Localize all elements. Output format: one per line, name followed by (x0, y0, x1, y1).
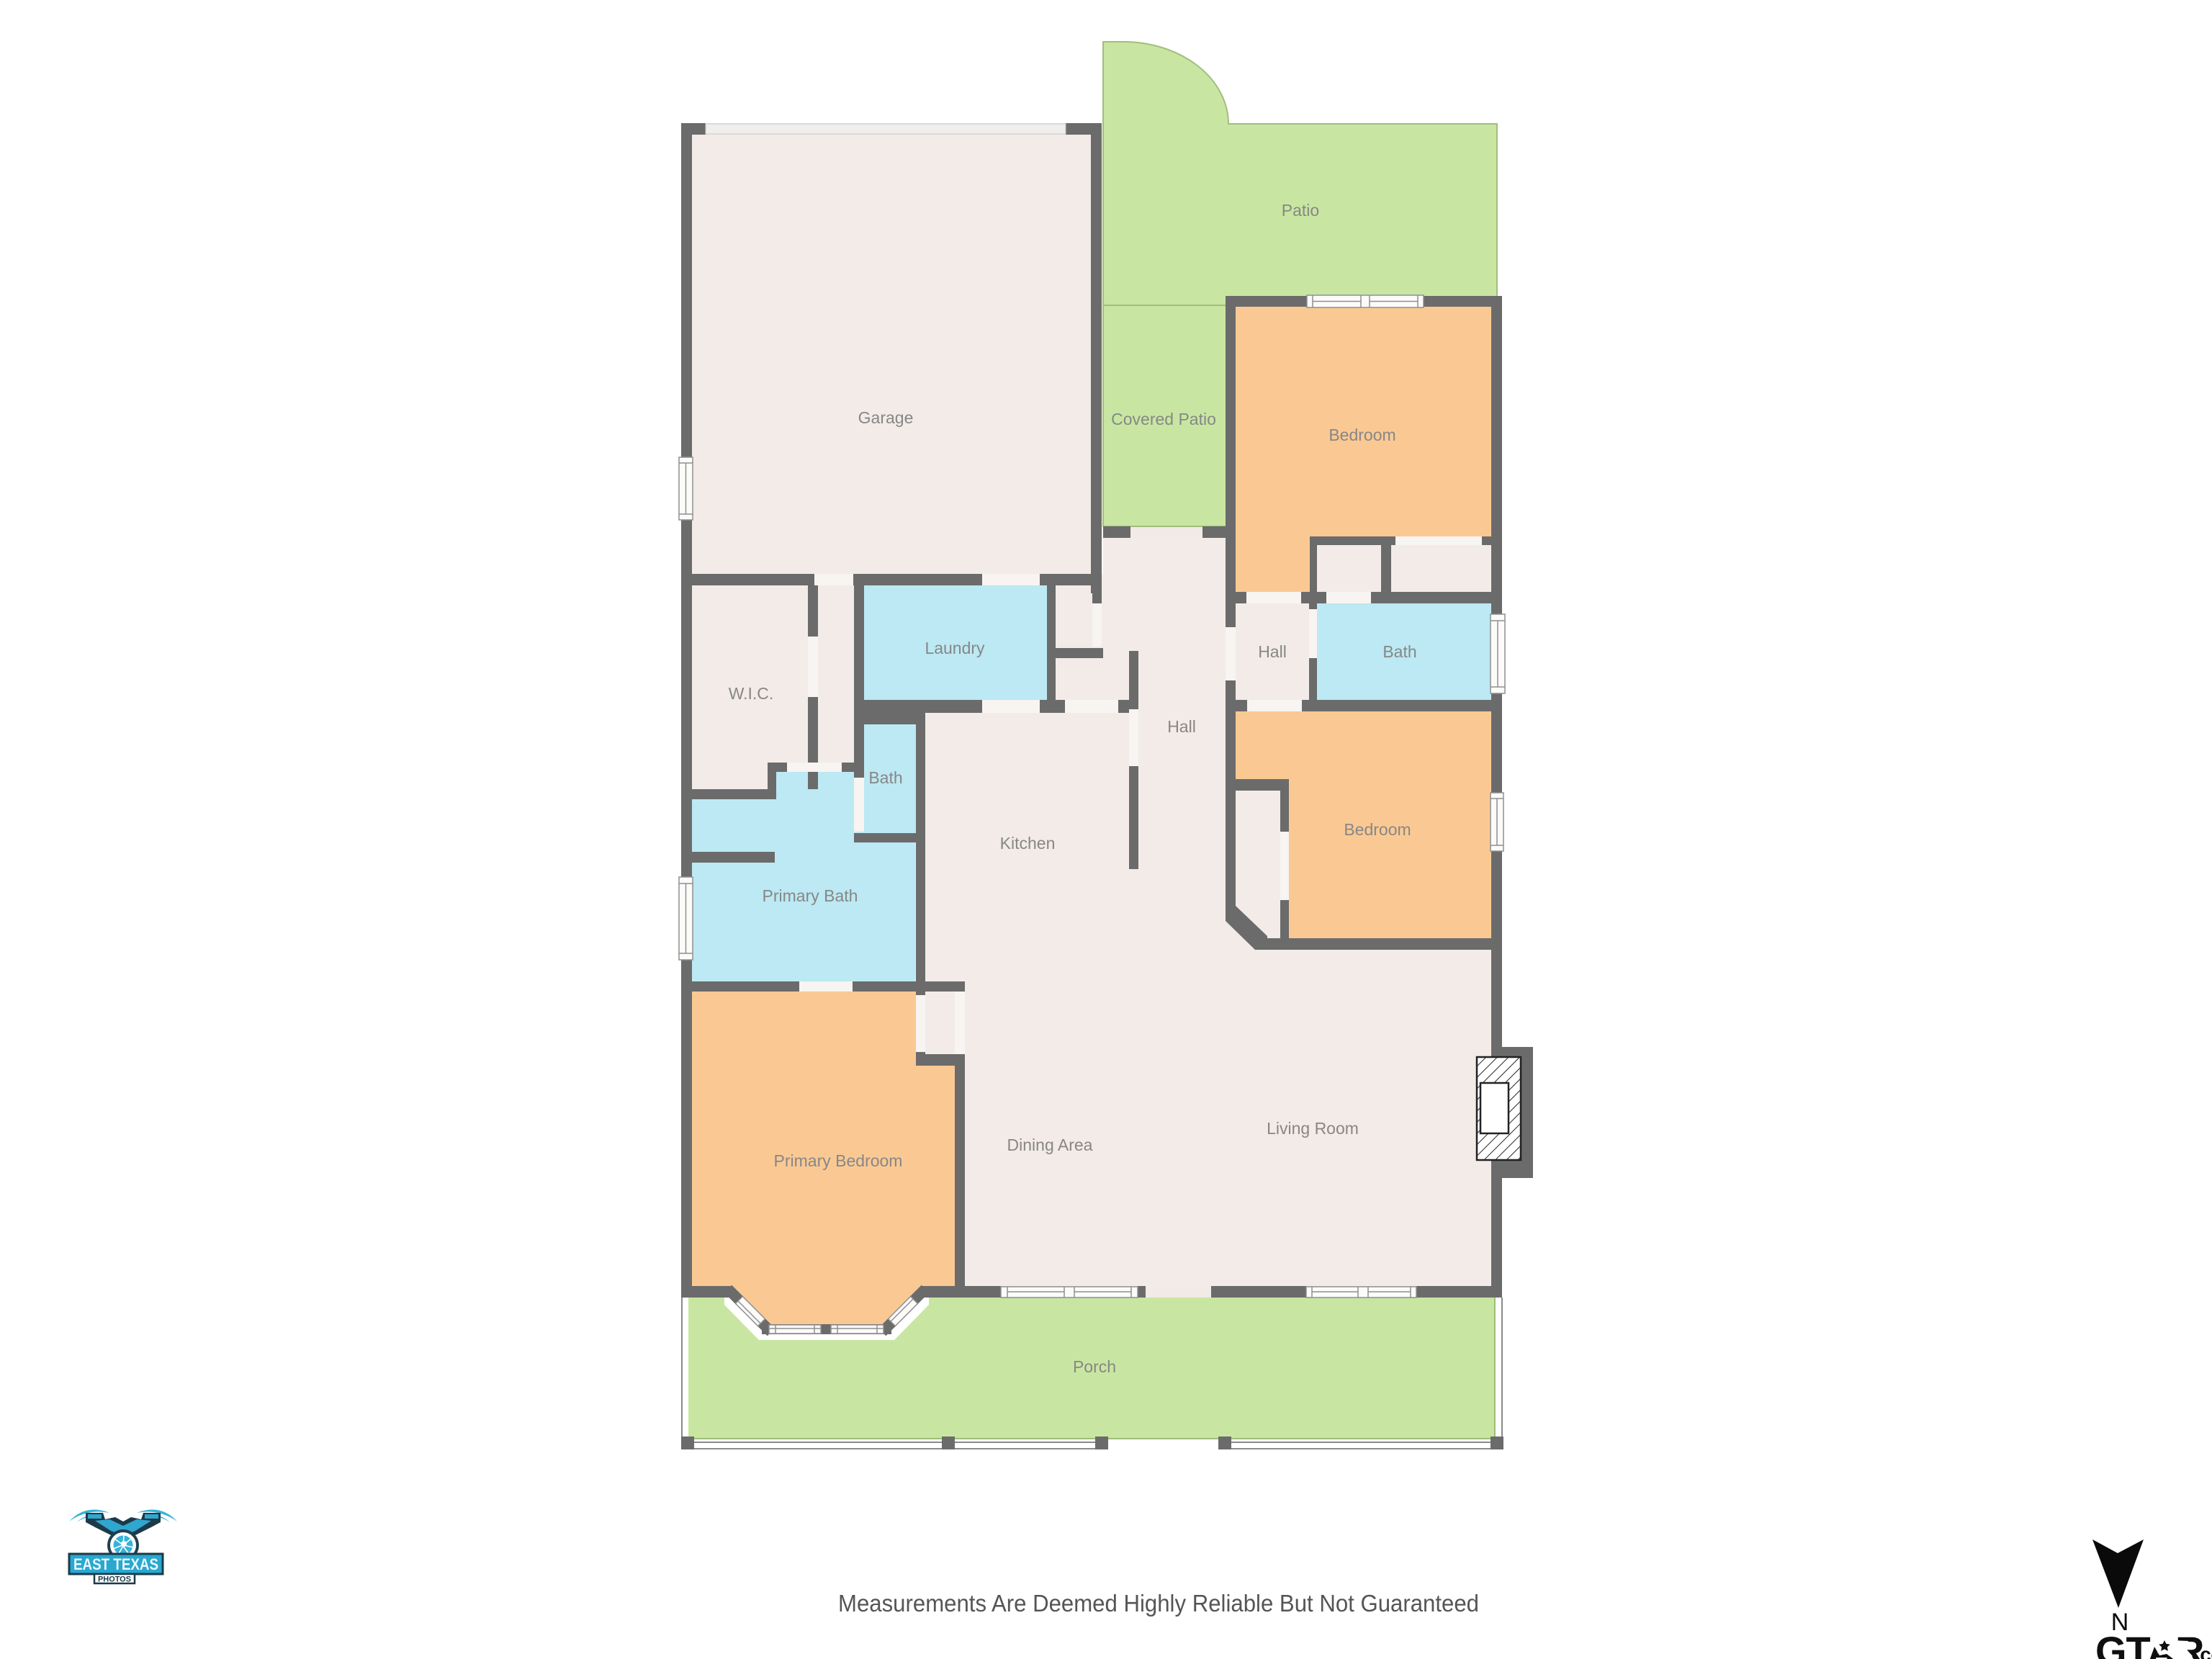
svg-text:Hall: Hall (1167, 717, 1196, 736)
svg-text:Living Room: Living Room (1267, 1119, 1359, 1138)
svg-text:EAST TEXAS: EAST TEXAS (73, 1555, 158, 1573)
svg-text:PHOTOS: PHOTOS (98, 1575, 131, 1584)
svg-text:Primary Bedroom: Primary Bedroom (774, 1151, 903, 1170)
svg-text:Kitchen: Kitchen (1000, 834, 1056, 853)
svg-text:Dining Area: Dining Area (1007, 1136, 1093, 1154)
svg-text:Covered Patio: Covered Patio (1111, 410, 1216, 428)
svg-text:Bath: Bath (868, 768, 902, 787)
svg-text:Hall: Hall (1258, 642, 1287, 661)
svg-text:.com: .com (2195, 1643, 2212, 1659)
svg-text:Laundry: Laundry (925, 639, 985, 657)
svg-text:Bath: Bath (1382, 642, 1416, 661)
svg-text:Primary Bath: Primary Bath (763, 886, 858, 905)
svg-text:Patio: Patio (1282, 201, 1319, 220)
svg-text:Measurements Are Deemed Highly: Measurements Are Deemed Highly Reliable … (838, 1590, 1479, 1617)
svg-text:Bedroom: Bedroom (1344, 820, 1411, 839)
svg-text:Garage: Garage (858, 408, 914, 427)
svg-text:Porch: Porch (1073, 1357, 1116, 1376)
svg-text:W.I.C.: W.I.C. (729, 684, 774, 703)
svg-text:Bedroom: Bedroom (1328, 426, 1395, 444)
